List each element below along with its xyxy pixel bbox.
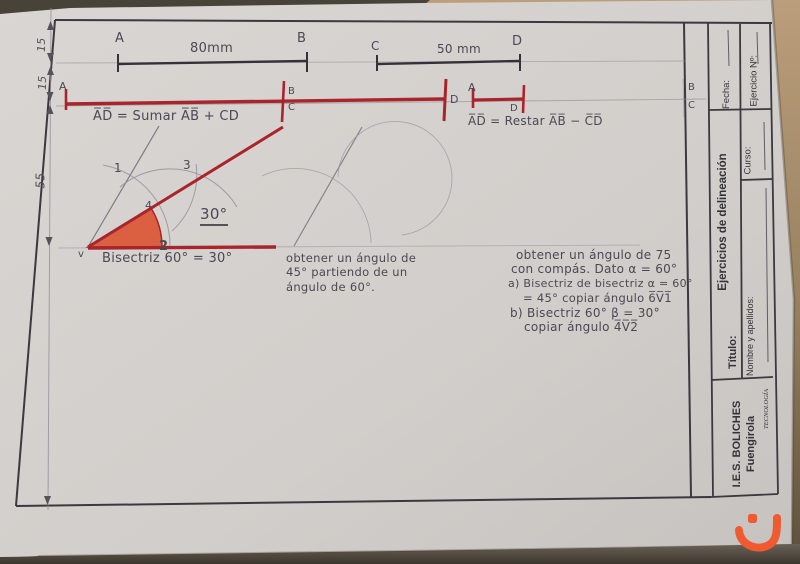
angle-30-label: 30°: [200, 205, 228, 226]
photographed-worksheet: 15 15 55 A 80mm B C 50 mm D A B C D A̅D̅…: [0, 0, 800, 564]
length-cd: 50 mm: [437, 42, 481, 56]
sum-point-b: B: [288, 86, 295, 97]
dim-label-15-mid: 15: [36, 70, 48, 90]
school-name: I.E.S. BOLICHES Fuengirola: [730, 394, 760, 494]
length-ab: 80mm: [190, 41, 233, 56]
rest-caption: A̅D̅ = Restar A̅B̅ − C̅D̅: [468, 114, 603, 128]
right-note-line1: obtener un ángulo de 75: [516, 248, 671, 262]
mid-note-line3: ángulo de 60°.: [286, 280, 375, 294]
sum-caption: A̅D̅ = Sumar A̅B̅ + CD: [93, 109, 239, 124]
rest-point-d: D: [510, 103, 518, 114]
right-note-line3: a) Bisectriz de bisectriz α = 60°: [508, 277, 693, 290]
point-d-top: D: [512, 34, 522, 49]
dim-label-55: 55: [34, 167, 47, 189]
point-1: 1: [114, 161, 122, 175]
point-b-top: B: [297, 31, 306, 46]
right-note-line4: = 45° copiar ángulo 6̅V̅1̅: [523, 291, 672, 305]
vertex-v: v: [78, 249, 84, 260]
dept-label: TECNOLOGÍA: [761, 384, 771, 434]
right-note-line6: copiar ángulo 4̅V̅2̅: [524, 320, 638, 334]
point-3: 3: [183, 158, 191, 172]
right-note-line5: b) Bisectriz 60° β = 30°: [510, 306, 660, 320]
margin-point-b: B: [688, 82, 695, 93]
sum-point-a: A: [59, 80, 67, 93]
dim-label-15-top: 15: [35, 32, 47, 52]
sum-point-d: D: [450, 93, 459, 106]
right-note-line2: con compás. Dato α = 60°: [511, 262, 677, 276]
school-name-line2: Fuengirola: [745, 416, 757, 472]
titleblock-curso-label: Curso:: [742, 137, 755, 175]
mid-note-line2: 45° partiendo de un: [286, 265, 407, 279]
titleblock-titulo-label: Título:: [726, 325, 740, 369]
point-4: 4: [145, 199, 152, 212]
titleblock-title: Ejercicios de delineación: [715, 134, 731, 310]
bisector-caption: Bisectriz 60° = 30°: [102, 251, 232, 266]
point-c-top: C: [371, 39, 380, 53]
mid-note-line1: obtener un ángulo de: [286, 251, 416, 265]
point-a-top: A: [115, 31, 124, 46]
sum-point-c: C: [288, 102, 295, 113]
titleblock-fecha-label: Fecha:: [719, 69, 733, 109]
titleblock-ejercicio-label: Ejercicio Nº:: [748, 43, 761, 107]
titleblock-nombre-label: Nombre y apellidos:: [744, 286, 756, 376]
rest-point-a: A: [468, 81, 476, 94]
margin-point-c: C: [688, 100, 695, 111]
school-name-line1: I.E.S. BOLICHES: [731, 401, 743, 488]
